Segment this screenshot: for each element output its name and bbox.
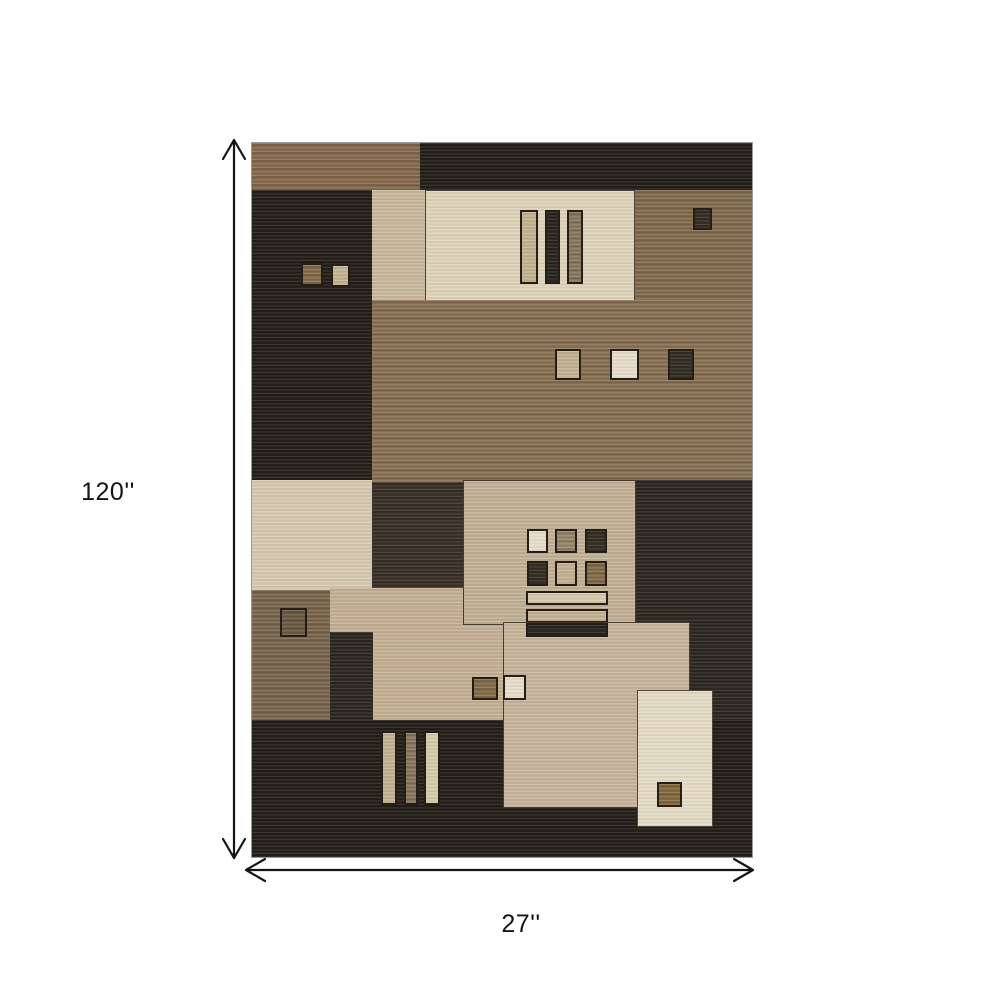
square-tan-center	[555, 349, 581, 380]
square-brown-small-bottom	[472, 677, 498, 700]
square-beige-small-bottom	[503, 675, 526, 700]
square-gold-brown	[657, 782, 682, 807]
strip-dark-lower	[330, 632, 373, 720]
square-tan-upper-left	[331, 264, 350, 287]
width-dimension-arrow	[246, 859, 753, 881]
height-dimension-label: 120''	[63, 480, 153, 505]
square-cream-center	[610, 349, 639, 380]
bar-tan-vertical-bottom	[381, 731, 397, 805]
rug-image	[252, 143, 752, 857]
grid-square-dark-a	[585, 529, 607, 553]
bar-cream-horizontal	[526, 591, 608, 605]
block-dark-mid	[372, 482, 463, 588]
bar-cream-vertical-bottom	[424, 731, 440, 805]
arrowhead-left-icon	[246, 859, 265, 881]
bar-dark-vertical-top	[545, 210, 560, 284]
block-dark-upper-left	[252, 190, 372, 527]
grid-square-tan	[555, 561, 577, 586]
product-dimension-diagram: 120'' 27''	[0, 0, 1000, 1000]
arrowhead-right-icon	[734, 859, 753, 881]
bar-tan-horizontal	[526, 609, 608, 623]
square-outline-brown	[280, 608, 307, 637]
panel-light-left	[252, 480, 372, 590]
height-dimension-arrow	[223, 140, 245, 858]
square-dark-center	[668, 349, 694, 380]
bar-brown-vertical-top	[567, 210, 583, 284]
square-brown-upper-left	[301, 263, 323, 286]
grid-square-cream	[527, 529, 548, 553]
bar-brown-vertical-bottom	[404, 731, 418, 805]
bar-dark-horizontal	[526, 623, 608, 637]
bar-tan-vertical-top	[520, 210, 538, 284]
grid-square-dark-b	[527, 561, 548, 586]
width-dimension-label: 27''	[476, 912, 566, 937]
grid-square-graybrown	[555, 529, 577, 553]
grid-square-brown	[585, 561, 607, 586]
arrowhead-down-icon	[223, 839, 245, 858]
arrowhead-up-icon	[223, 140, 245, 159]
block-brown-large	[372, 300, 752, 482]
square-dark-top-right	[693, 208, 712, 230]
band-brown-top-left	[252, 143, 420, 190]
